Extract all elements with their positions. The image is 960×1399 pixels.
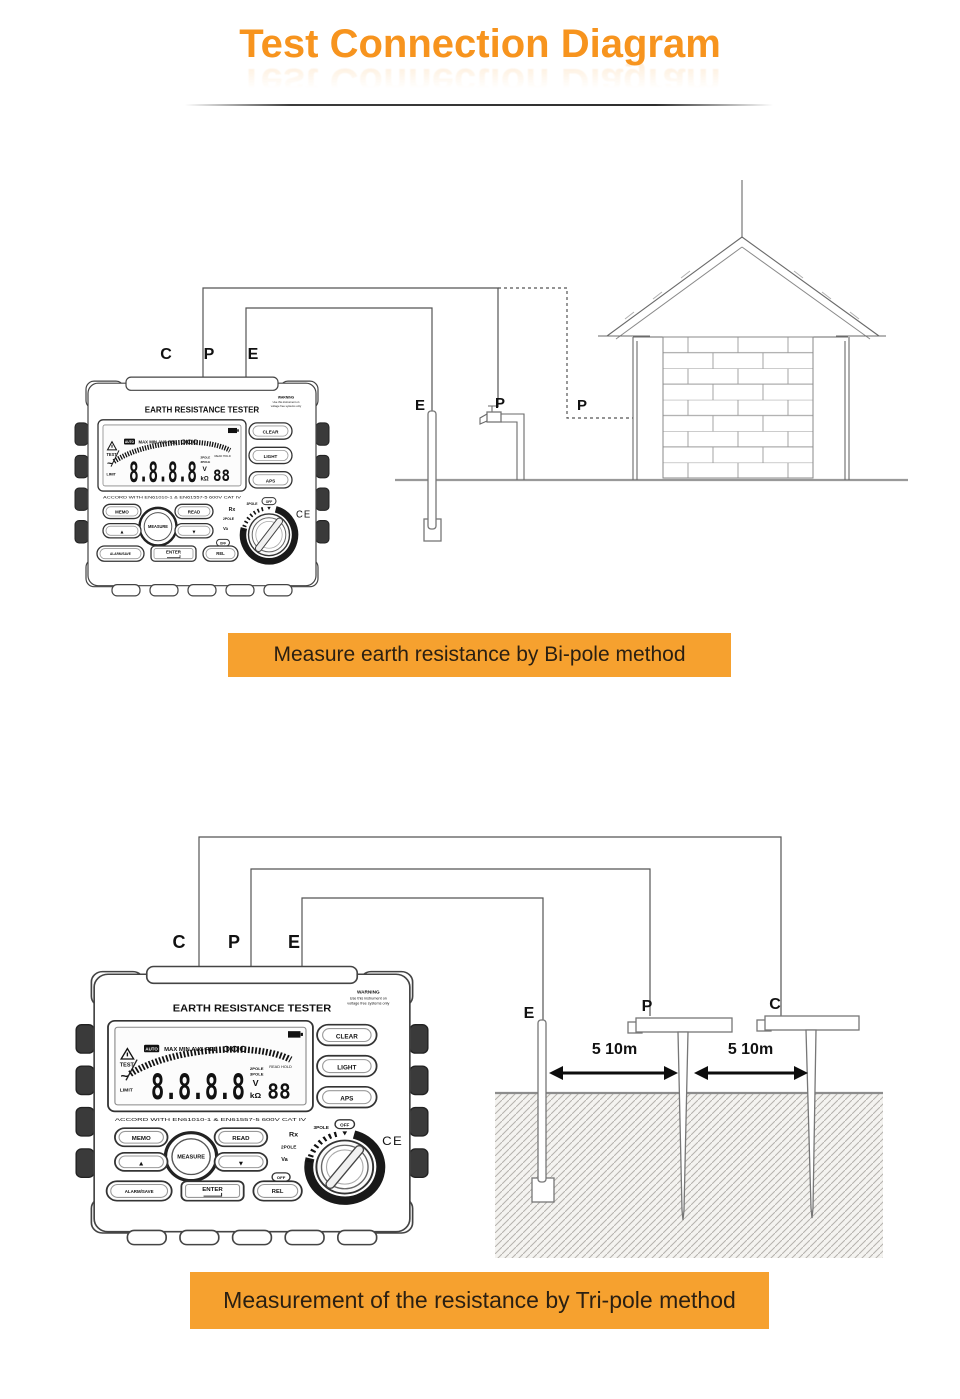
tripole-banner: Measurement of the resistance by Tri-pol… xyxy=(190,1272,769,1329)
read-flag: READ xyxy=(269,1065,280,1069)
enter-button: ENTER xyxy=(166,550,182,555)
hold-flag: HOLD xyxy=(281,1065,292,1069)
read-flag: READ xyxy=(215,454,223,458)
dial-3pole-label: 3POLE xyxy=(314,1125,329,1130)
clear-button: CLEAR xyxy=(336,1034,358,1041)
measure-button: MEASURE xyxy=(177,1155,205,1161)
tripole-banner-text: Measurement of the resistance by Tri-pol… xyxy=(223,1287,736,1314)
test-flag: TEST xyxy=(107,452,118,457)
dial-va-label: Va xyxy=(223,526,228,531)
svg-text:WARNING: WARNING xyxy=(357,990,380,995)
up-button: ▲ xyxy=(138,1161,145,1168)
pole3-flag: 3POLE xyxy=(250,1072,264,1077)
dial-va-label: Va xyxy=(281,1157,289,1163)
ac-wave-icon: ~ xyxy=(120,1069,128,1083)
tripole-terminal-c-label: C xyxy=(168,933,190,951)
memo-button: MEMO xyxy=(132,1136,151,1142)
distance-arrow-pc xyxy=(694,1066,808,1080)
svg-text:Use this instrument on: Use this instrument on xyxy=(273,400,300,404)
alarm-save-button: ALARM/SAVE xyxy=(110,552,132,556)
terminal-strip xyxy=(126,377,278,390)
svg-text:Use this instrument on: Use this instrument on xyxy=(350,997,387,1001)
compliance-text: ACCORD WITH EN61010-1 & EN61557-5 600V C… xyxy=(103,496,242,500)
right-buttons: CLEAR LIGHT APS xyxy=(317,1025,377,1108)
distance-arrow-ep xyxy=(549,1066,678,1080)
read-button: READ xyxy=(232,1136,249,1142)
tripole-terminal-e-label: E xyxy=(283,933,305,951)
house xyxy=(598,180,886,480)
clear-button: CLEAR xyxy=(263,430,279,435)
rel-button: REL xyxy=(216,551,225,556)
rel-button: REL xyxy=(272,1189,284,1195)
bipole-banner: Measure earth resistance by Bi-pole meth… xyxy=(228,633,731,677)
device-title: EARTH RESISTANCE TESTER xyxy=(145,406,260,415)
bipole-tap-p-label: P xyxy=(492,396,508,411)
tripole-stake-p-label: P xyxy=(638,999,656,1015)
aps-button: APS xyxy=(340,1096,353,1103)
tripole-stake-c-label: C xyxy=(766,997,784,1013)
up-button: ▲ xyxy=(120,530,125,536)
down-button: ▼ xyxy=(192,530,197,536)
read-button: READ xyxy=(188,509,200,514)
bipole-earth-rod xyxy=(424,411,441,541)
dial-2pole-label: 2POLE xyxy=(281,1144,296,1149)
measure-button: MEASURE xyxy=(148,524,168,529)
tester-device-tripole: EARTH RESISTANCE TESTER WARNING Use this… xyxy=(72,960,432,1255)
bipole-p-house-wire-dashed xyxy=(498,288,633,418)
page: Test Connection Diagram Test Connection … xyxy=(0,0,960,1399)
distance-pc-label: 5 10m xyxy=(708,1042,793,1058)
enter-button: ENTER xyxy=(202,1187,223,1193)
svg-text:voltage free systems only: voltage free systems only xyxy=(347,1002,389,1006)
auto-flag: AUTO xyxy=(145,1047,158,1052)
memo-button: MEMO xyxy=(115,509,129,514)
bipole-terminal-e-label: E xyxy=(243,347,263,363)
earth-resistance-tester: EARTH RESISTANCE TESTER WARNING Use this… xyxy=(72,372,332,604)
secondary-digits: 88 xyxy=(267,1080,291,1104)
bipole-banner-text: Measure earth resistance by Bi-pole meth… xyxy=(273,643,685,667)
unit-kohm: kΩ xyxy=(250,1091,262,1100)
dial-off-top-label: OFF xyxy=(340,1123,349,1128)
ce-mark: CE xyxy=(296,509,311,520)
ac-wave-icon: ~ xyxy=(107,459,113,470)
dial-3pole-label: 3POLE xyxy=(246,502,258,506)
display-flags: MAX MIN AVG REL xyxy=(164,1047,218,1053)
display-flags: MAX MIN AVG REL xyxy=(139,439,178,444)
earth-resistance-tester: EARTH RESISTANCE TESTER WARNING Use this… xyxy=(72,960,432,1255)
light-button: LIGHT xyxy=(264,454,278,459)
limit-flag: LIMIT xyxy=(107,472,117,476)
ce-mark: CE xyxy=(382,1133,403,1147)
unit-v: V xyxy=(203,466,208,473)
main-digits: 8.8.8.8 xyxy=(129,457,197,488)
dial-rx-label: Rx xyxy=(289,1132,298,1139)
secondary-digits: 88 xyxy=(213,466,230,485)
pole3-flag: 3POLE xyxy=(201,460,211,464)
tester-device-bipole: EARTH RESISTANCE TESTER WARNING Use this… xyxy=(72,372,332,604)
dial-2pole-label: 2POLE xyxy=(223,517,235,521)
main-digits: 8.8.8.8 xyxy=(151,1066,245,1108)
auto-flag: AUTO xyxy=(125,440,134,444)
bipole-house-p-label: P xyxy=(574,398,590,413)
aps-button: APS xyxy=(266,478,275,483)
device-title: EARTH RESISTANCE TESTER xyxy=(173,1003,332,1015)
bipole-rod-e-label: E xyxy=(412,398,428,413)
terminal-strip xyxy=(147,966,357,983)
dial-rx-label: Rx xyxy=(229,507,236,513)
battery-icon xyxy=(288,1031,300,1037)
pole2-flag: 2POLE xyxy=(250,1066,264,1071)
svg-text:WARNING: WARNING xyxy=(278,395,295,399)
soil xyxy=(495,1093,883,1258)
hold-flag: HOLD xyxy=(223,454,231,458)
right-buttons: CLEAR LIGHT APS xyxy=(249,423,292,488)
dial-off-left-label: OFF xyxy=(220,541,226,545)
bipole-terminal-p-label: P xyxy=(199,347,219,363)
svg-text:voltage free systems only: voltage free systems only xyxy=(271,404,302,408)
light-button: LIGHT xyxy=(337,1065,356,1072)
unit-kohm: kΩ xyxy=(201,476,209,482)
water-tap xyxy=(480,406,524,480)
tripole-terminal-p-label: P xyxy=(223,933,245,951)
tripole-stake-e-label: E xyxy=(520,1006,538,1022)
distance-ep-label: 5 10m xyxy=(572,1042,657,1058)
battery-icon xyxy=(228,428,237,433)
alarm-save-button: ALARM/SAVE xyxy=(125,1189,154,1194)
brick-wall xyxy=(663,337,813,478)
lcd-display: AUTO MAX MIN AVG REL TEST ~ LIMIT 8.8.8.… xyxy=(98,420,246,491)
unit-v: V xyxy=(253,1078,259,1088)
dial-off-left-label: OFF xyxy=(277,1175,286,1180)
bipole-terminal-c-label: C xyxy=(156,347,176,363)
compliance-text: ACCORD WITH EN61010-1 & EN61557-5 600V C… xyxy=(115,1117,307,1123)
down-button: ▼ xyxy=(238,1161,245,1168)
dial-off-top-label: OFF xyxy=(266,500,273,504)
limit-flag: LIMIT xyxy=(120,1087,133,1093)
lcd-display: AUTO MAX MIN AVG REL TEST ~ LIMIT 8.8.8.… xyxy=(108,1021,313,1112)
